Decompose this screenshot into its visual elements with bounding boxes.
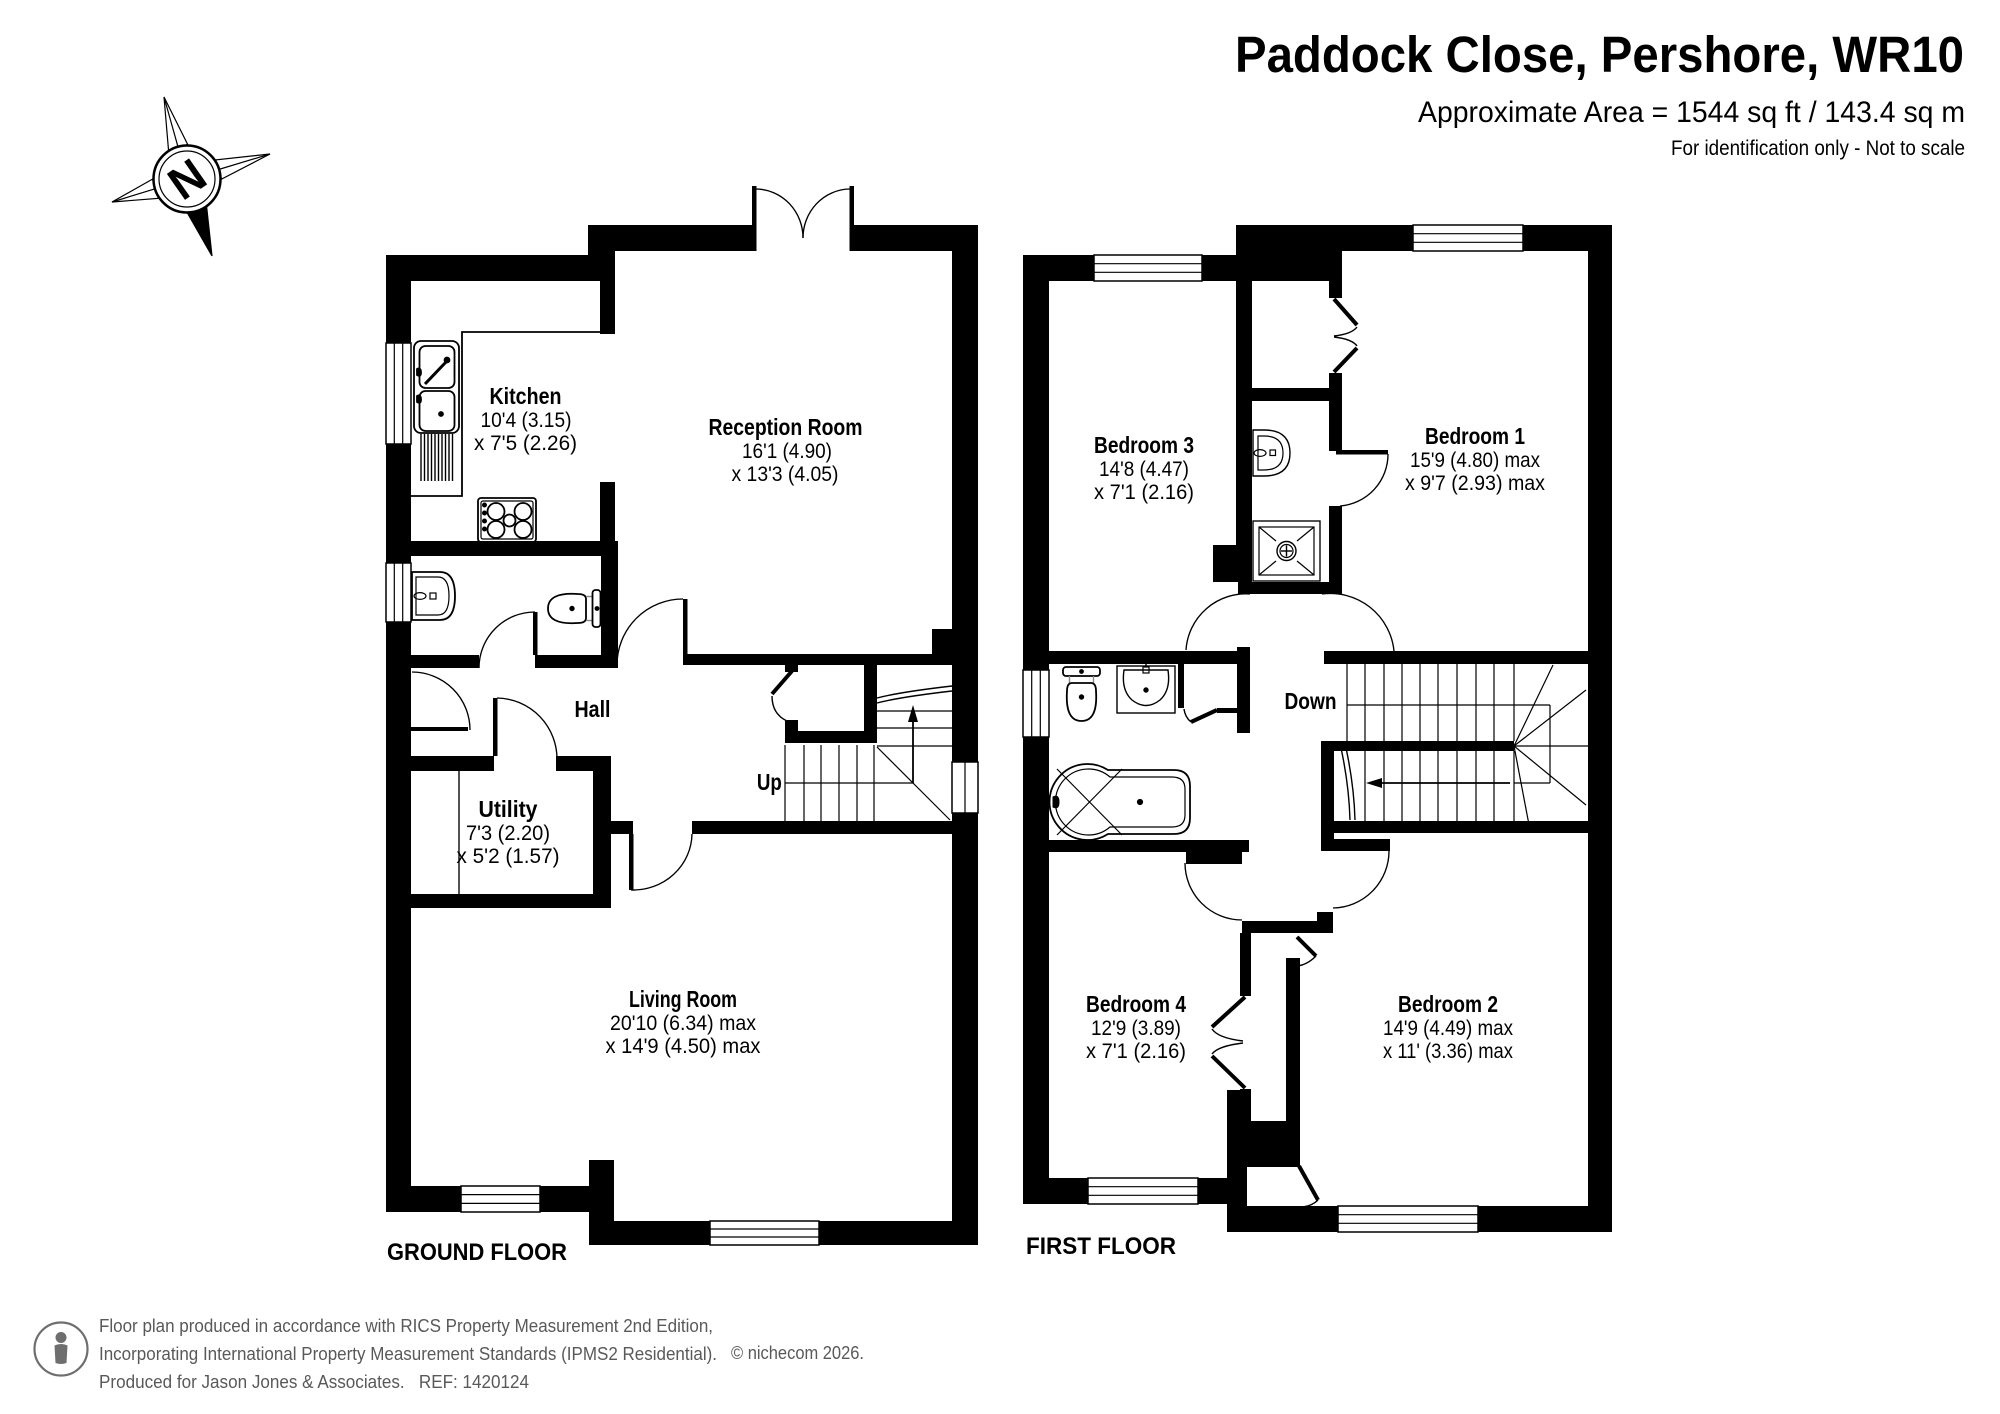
svg-text:Utility: Utility — [479, 796, 538, 822]
svg-text:Down: Down — [1285, 688, 1337, 714]
svg-text:x 7'1 (2.16): x 7'1 (2.16) — [1094, 480, 1194, 504]
svg-text:10'4 (3.15): 10'4 (3.15) — [481, 408, 572, 432]
svg-text:Bedroom 2: Bedroom 2 — [1398, 991, 1498, 1017]
svg-text:Floor plan produced in accorda: Floor plan produced in accordance with R… — [99, 1316, 713, 1336]
svg-text:Produced for Jason Jones & Ass: Produced for Jason Jones & Associates. R… — [99, 1372, 529, 1392]
svg-text:x 13'3 (4.05): x 13'3 (4.05) — [732, 462, 839, 486]
svg-text:7'3 (2.20): 7'3 (2.20) — [466, 821, 550, 845]
svg-text:Bedroom 3: Bedroom 3 — [1094, 432, 1194, 458]
svg-text:14'9 (4.49) max: 14'9 (4.49) max — [1383, 1016, 1513, 1040]
svg-text:FIRST FLOOR: FIRST FLOOR — [1026, 1233, 1176, 1260]
svg-text:Reception Room: Reception Room — [709, 414, 863, 440]
svg-text:12'9 (3.89): 12'9 (3.89) — [1091, 1016, 1181, 1040]
svg-text:x 11' (3.36) max: x 11' (3.36) max — [1383, 1039, 1513, 1063]
svg-text:x 9'7 (2.93) max: x 9'7 (2.93) max — [1405, 471, 1545, 495]
svg-text:Hall: Hall — [575, 696, 611, 722]
svg-text:14'8 (4.47): 14'8 (4.47) — [1099, 457, 1189, 481]
svg-text:20'10 (6.34) max: 20'10 (6.34) max — [610, 1011, 756, 1035]
svg-text:Bedroom 1: Bedroom 1 — [1425, 423, 1525, 449]
svg-text:x 7'5 (2.26): x 7'5 (2.26) — [474, 431, 577, 455]
svg-text:Bedroom 4: Bedroom 4 — [1086, 991, 1186, 1017]
svg-text:GROUND FLOOR: GROUND FLOOR — [387, 1239, 567, 1266]
svg-text:© nichecom 2026.: © nichecom 2026. — [731, 1343, 864, 1363]
svg-text:16'1 (4.90): 16'1 (4.90) — [742, 439, 832, 463]
svg-text:x 14'9 (4.50) max: x 14'9 (4.50) max — [606, 1034, 761, 1058]
svg-text:x 5'2 (1.57): x 5'2 (1.57) — [457, 844, 560, 868]
svg-text:Up: Up — [757, 769, 782, 795]
svg-text:15'9 (4.80) max: 15'9 (4.80) max — [1410, 448, 1540, 472]
svg-text:For identification only - Not: For identification only - Not to scale — [1671, 137, 1965, 160]
svg-text:x 7'1 (2.16): x 7'1 (2.16) — [1086, 1039, 1186, 1063]
svg-text:Paddock Close, Pershore, WR10: Paddock Close, Pershore, WR10 — [1235, 26, 1964, 83]
svg-text:Living Room: Living Room — [629, 986, 737, 1012]
svg-text:Approximate Area = 1544 sq ft: Approximate Area = 1544 sq ft / 143.4 sq… — [1418, 96, 1965, 129]
svg-text:Incorporating International Pr: Incorporating International Property Mea… — [99, 1344, 717, 1364]
svg-text:Kitchen: Kitchen — [490, 383, 562, 409]
